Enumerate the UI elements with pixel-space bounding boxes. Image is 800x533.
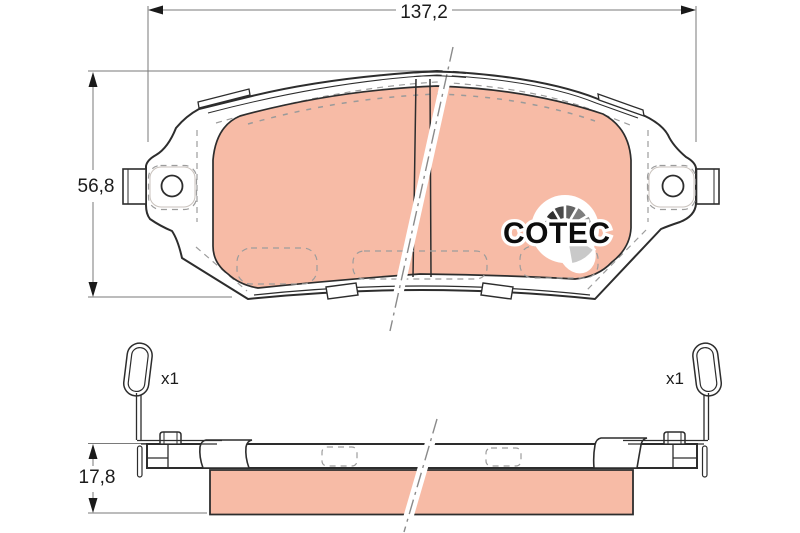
height-arrow-bottom (89, 282, 98, 297)
brake-pad-technical-drawing: 137,2 56,8 17,8 (0, 0, 800, 533)
left-abutment-tab (123, 169, 146, 204)
right-clip-tail (703, 446, 708, 477)
right-ear-hole (663, 176, 684, 197)
left-clip-tail (138, 446, 143, 477)
right-clip-loop-outer (691, 342, 722, 398)
right-clip-loop-inner (696, 347, 718, 393)
height-dimension-label: 56,8 (78, 176, 115, 197)
thickness-arrow-bottom (89, 498, 98, 513)
front-view: COTEC (123, 47, 719, 331)
width-arrow-left (148, 6, 163, 15)
height-arrow-top (89, 72, 98, 87)
clip-bump-right (664, 432, 685, 444)
right-clip-quantity-label: x1 (666, 369, 684, 388)
left-ear-hole (162, 176, 183, 197)
width-dimension-label: 137,2 (400, 2, 448, 23)
left-clip-loop-inner (127, 347, 149, 393)
cotec-logo-text: COTEC (503, 217, 611, 250)
left-clip-quantity-label: x1 (161, 369, 179, 388)
side-view: x1 x1 (122, 342, 722, 532)
right-abutment-tab (697, 169, 720, 204)
drawing-svg: 137,2 56,8 17,8 (0, 0, 800, 533)
thickness-arrow-top (89, 444, 98, 459)
width-arrow-right (681, 6, 696, 15)
left-clip-loop-outer (122, 342, 153, 398)
thickness-dimension-label: 17,8 (79, 467, 116, 488)
clip-bump-left (160, 432, 181, 444)
